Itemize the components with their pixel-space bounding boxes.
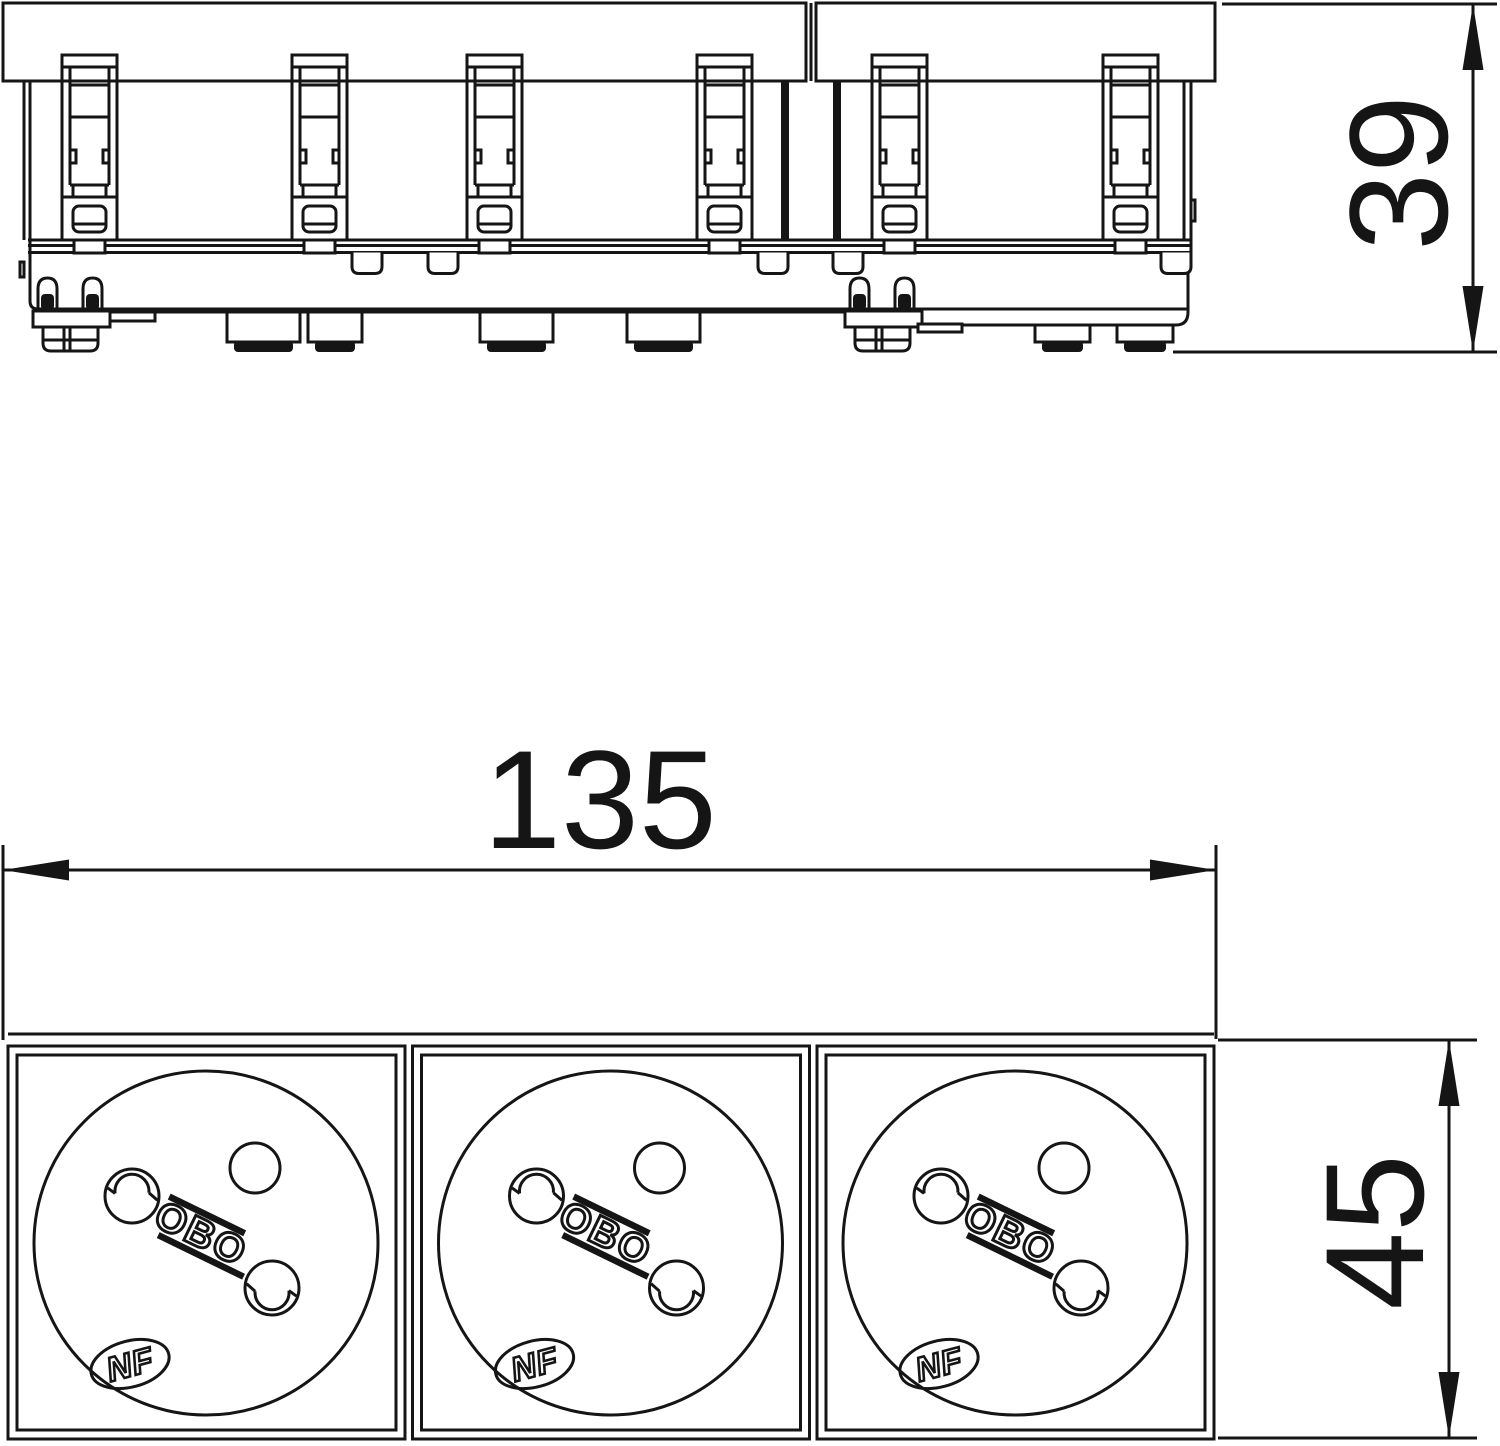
socket-module-3: [817, 1046, 1214, 1439]
fixing-clip-5: [872, 55, 927, 240]
dim-135-label: 135: [483, 721, 717, 878]
cover-plate-right: [816, 3, 1215, 81]
dimension-135: 135: [3, 721, 1216, 1040]
fixing-clip-6: [1103, 55, 1158, 240]
lower-housing: [30, 253, 1188, 326]
fixing-clip-2: [292, 55, 347, 240]
fixing-clip-1: [62, 55, 117, 240]
hanging-tab: [428, 253, 458, 274]
hanging-tab: [833, 253, 863, 274]
socket-module-2: [413, 1046, 810, 1439]
dimension-arrow: [3, 860, 69, 881]
dim-39-label: 39: [1320, 95, 1477, 251]
hanging-tab: [758, 253, 788, 274]
cover-plate-left: [3, 3, 806, 81]
socket-module-1: [8, 1046, 405, 1439]
dimension-39: 39: [1173, 4, 1497, 352]
module-separator: [833, 81, 841, 241]
mounting-claw-right: [845, 278, 922, 351]
dimension-arrow: [1463, 4, 1484, 70]
fixing-clip-3: [467, 55, 522, 240]
mounting-claw-left: [33, 278, 110, 351]
dimension-arrow: [1150, 860, 1216, 881]
hanging-tab: [352, 253, 382, 274]
technical-drawing-page: OBO NF: [0, 0, 1500, 1446]
side-profile-view: [3, 3, 1215, 352]
front-view: [8, 1034, 1214, 1439]
dim-45-label: 45: [1296, 1154, 1453, 1310]
dimension-arrow: [1463, 286, 1484, 352]
dimension-arrow: [1439, 1372, 1460, 1438]
fixing-clip-4: [697, 55, 752, 240]
mounting-rail: [28, 240, 1190, 253]
hanging-tab: [1161, 253, 1191, 274]
support-feet: [227, 312, 1173, 352]
socket-module-technical-drawing: OBO NF: [0, 0, 1500, 1446]
dimension-45: 45: [1218, 1040, 1477, 1438]
module-separator: [781, 81, 789, 241]
dimension-arrow: [1439, 1040, 1460, 1106]
